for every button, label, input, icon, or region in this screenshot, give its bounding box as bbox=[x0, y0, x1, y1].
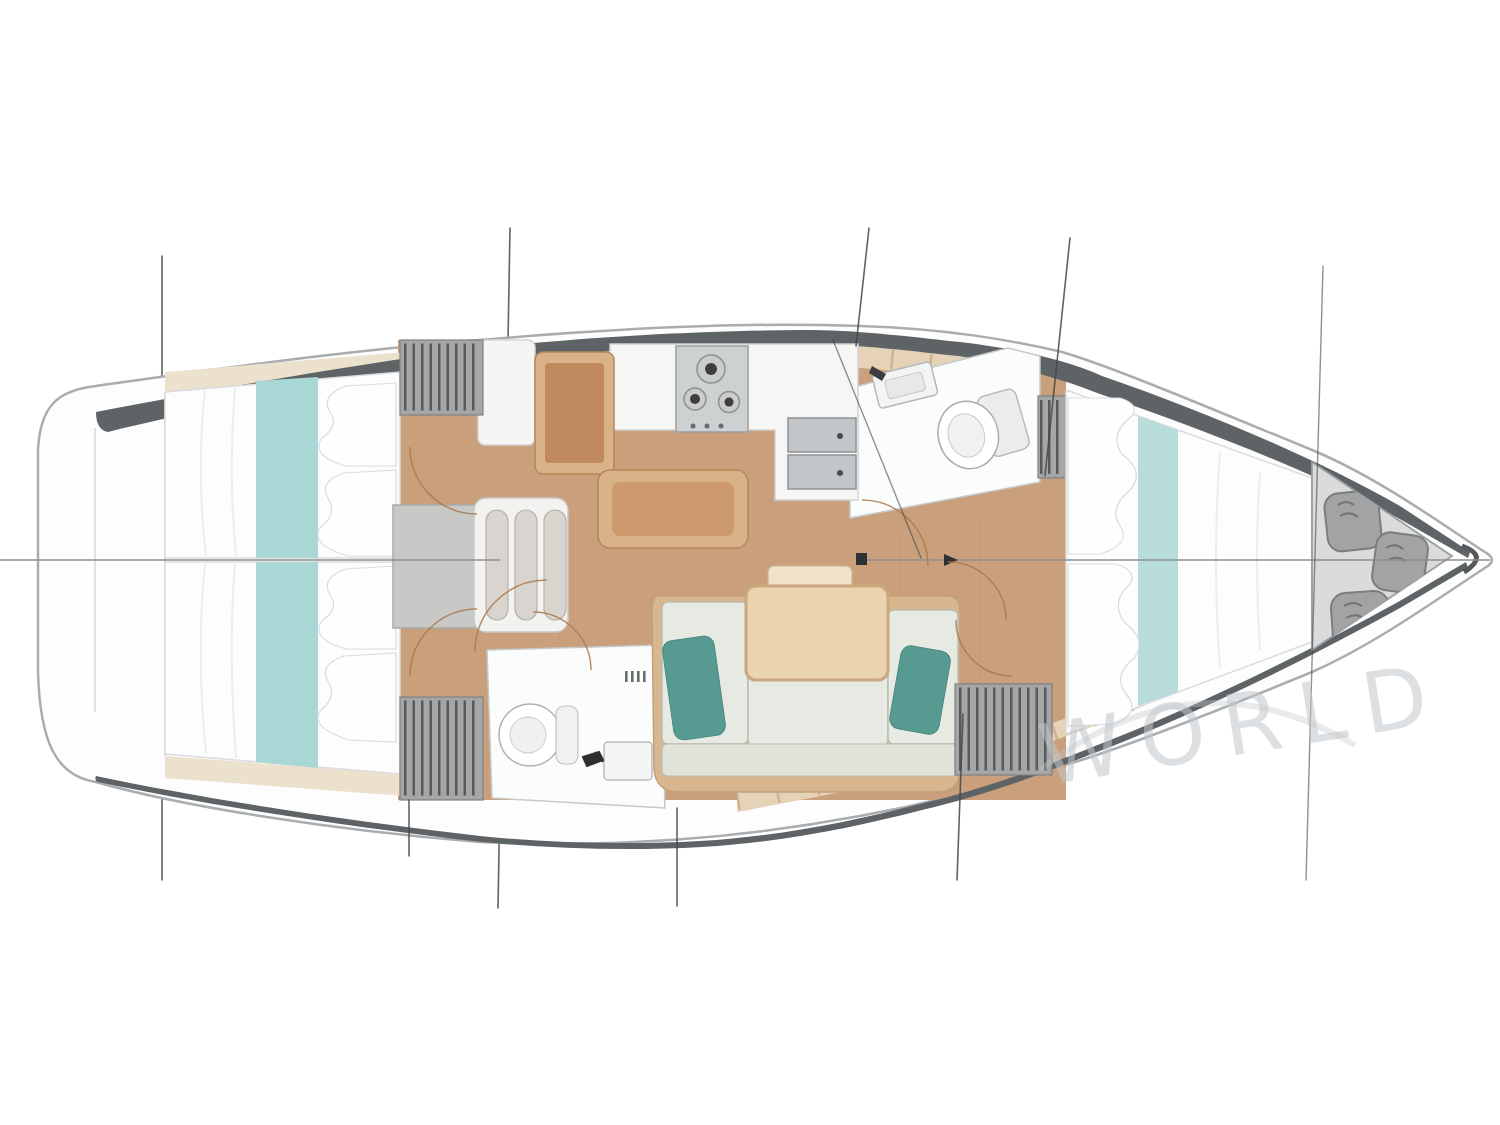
slatted-locker bbox=[400, 697, 483, 800]
toilet-bowl bbox=[510, 717, 546, 753]
floor-plan-drawing: WORLD bbox=[0, 0, 1500, 1125]
step bbox=[515, 510, 537, 620]
salon-seating bbox=[652, 566, 960, 792]
aft-head bbox=[487, 645, 665, 808]
step bbox=[544, 510, 566, 620]
aft-cabin-port bbox=[165, 372, 400, 558]
bed-runner bbox=[1138, 416, 1178, 706]
step bbox=[486, 510, 508, 620]
sink-basin bbox=[604, 742, 652, 780]
bed-runner bbox=[256, 562, 318, 768]
aft-cabin-starboard bbox=[165, 562, 400, 774]
nav-station-bench bbox=[598, 470, 748, 548]
nav-station-desk bbox=[535, 352, 614, 474]
toilet-tank bbox=[556, 706, 578, 764]
mast-marker bbox=[856, 553, 867, 565]
slatted-locker bbox=[400, 340, 483, 415]
sofa-back-cushion bbox=[662, 744, 958, 776]
salon-table bbox=[746, 586, 888, 680]
yacht-floor-plan: WORLD bbox=[0, 0, 1500, 1125]
galley-cabinet bbox=[478, 340, 535, 445]
bed-runner bbox=[256, 377, 318, 558]
